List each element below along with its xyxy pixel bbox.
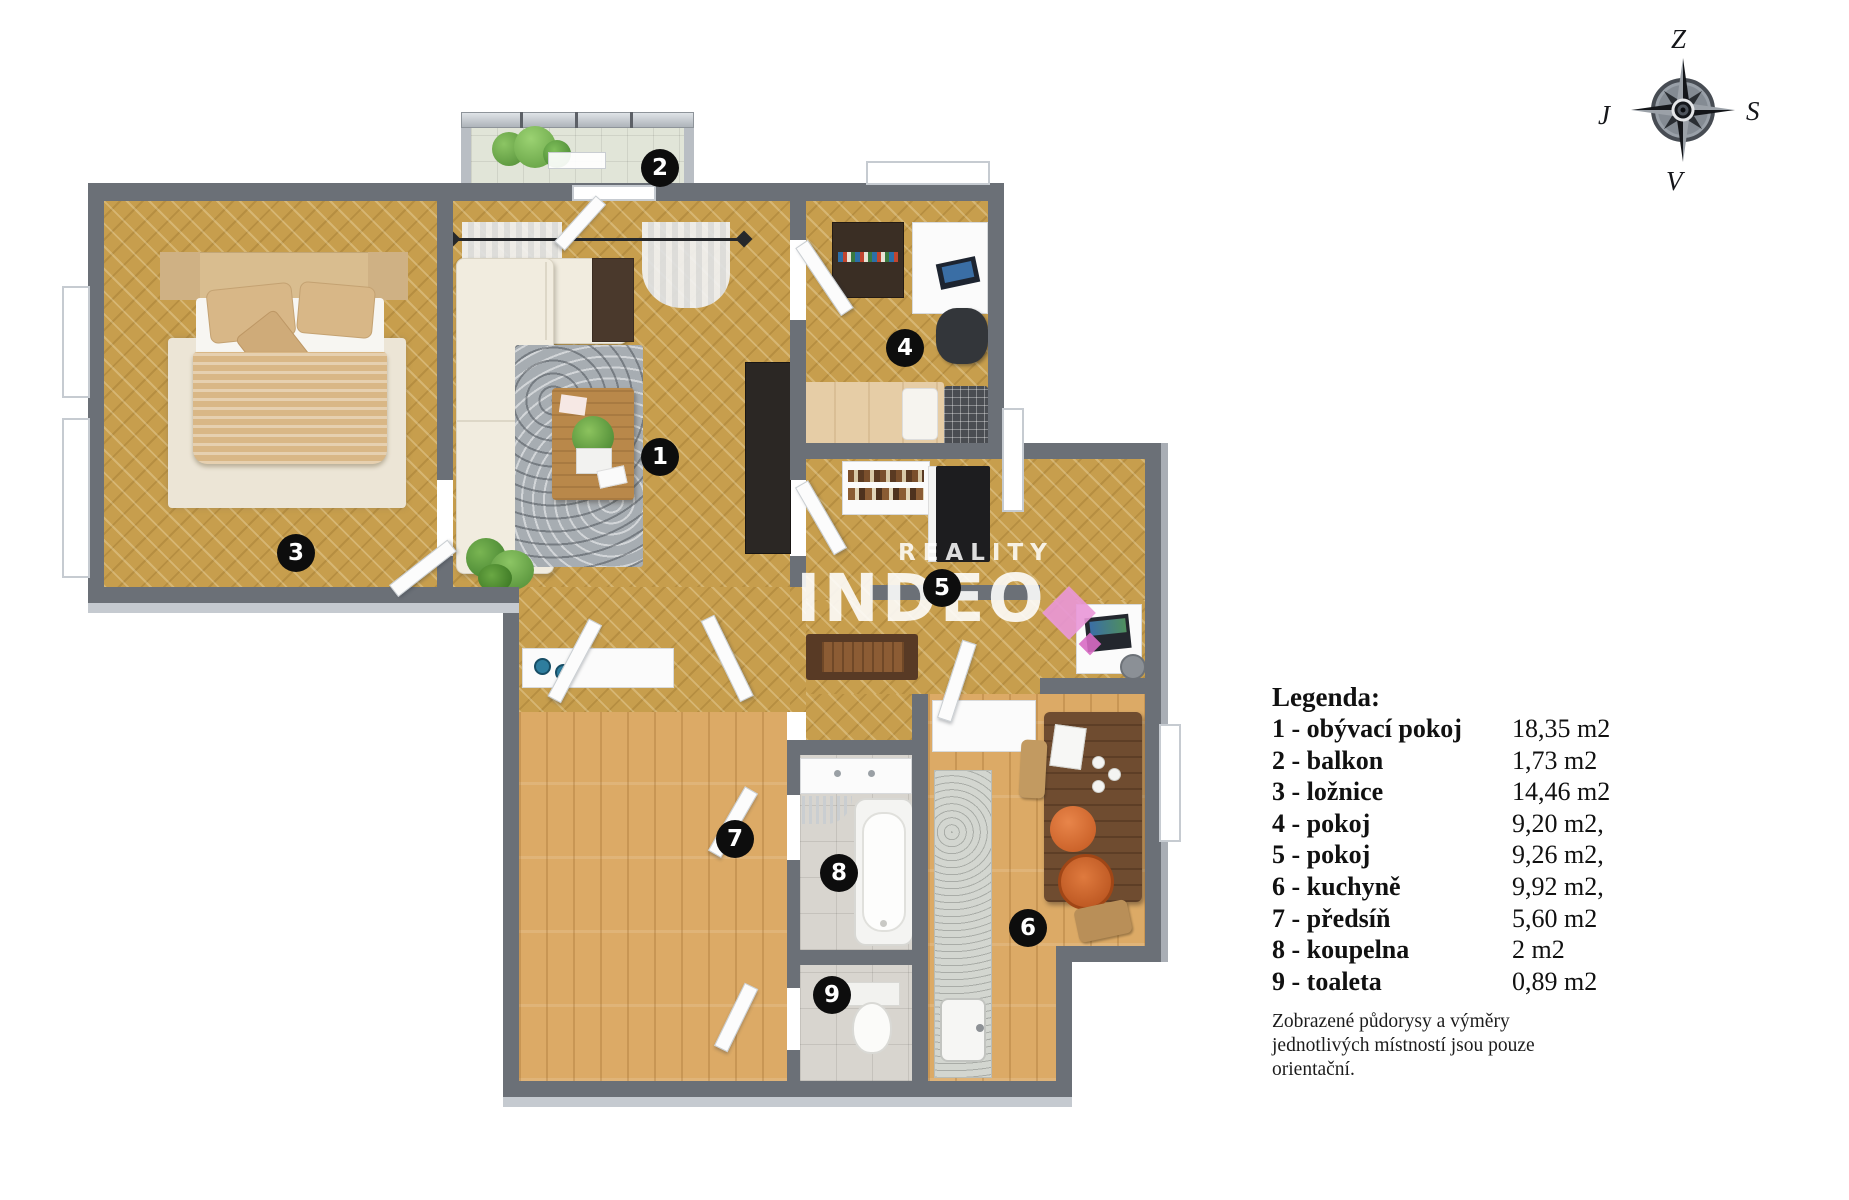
- entry-floor-2: [806, 694, 912, 740]
- balcony-railing-post: [575, 112, 578, 128]
- magazine: [559, 394, 587, 415]
- compass-dir-top: Z: [1671, 24, 1686, 55]
- nightstand: [160, 252, 200, 300]
- room-badge-2: 2: [641, 149, 679, 187]
- bed-room5: [936, 466, 990, 562]
- balcony-planter: [548, 152, 606, 169]
- wall: [1145, 443, 1161, 962]
- wc-bowl: [852, 1002, 892, 1054]
- legend-room-label: 3 - ložnice: [1272, 777, 1512, 807]
- window: [62, 286, 90, 398]
- legend-area-value: 5,60 m2: [1512, 904, 1597, 933]
- bathtub-drain: [880, 920, 887, 927]
- window: [1002, 408, 1024, 512]
- faucet: [976, 1024, 984, 1032]
- sofa-side-table: [592, 258, 634, 342]
- legend-row: 9 - toaleta0,89 m2: [1272, 967, 1652, 999]
- wall: [1056, 946, 1161, 962]
- wall: [437, 201, 453, 480]
- small-plate: [1108, 768, 1121, 781]
- legend-area-value: 18,35 m2: [1512, 714, 1610, 743]
- curtain: [642, 222, 730, 308]
- room-badge-8: 8: [820, 854, 858, 892]
- balcony-railing-post: [630, 112, 633, 128]
- faucet: [868, 770, 875, 777]
- room-badge-5: 5: [923, 569, 961, 607]
- legend-row: 1 - obývací pokoj18,35 m2: [1272, 714, 1652, 746]
- bed-room4-pillow: [902, 388, 938, 440]
- wall: [787, 860, 800, 988]
- legend-area-value: 0,89 m2: [1512, 967, 1597, 996]
- legend-area-value: 14,46 m2: [1512, 777, 1610, 806]
- balcony-door-frame: [572, 185, 656, 201]
- room-badge-6: 6: [1009, 909, 1047, 947]
- bed-room4-duvet: [944, 386, 988, 446]
- compass-rose-icon: [1625, 52, 1741, 168]
- office-chair: [936, 308, 988, 364]
- small-plate: [1092, 780, 1105, 793]
- entry-doormat-inner: [822, 642, 904, 672]
- legend-disclaimer: Zobrazené půdorysy a výměry jednotlivých…: [1272, 1010, 1590, 1081]
- wall: [1040, 678, 1161, 694]
- notebook: [1049, 724, 1087, 770]
- legend-area-value: 9,26 m2,: [1512, 840, 1604, 869]
- room-badge-3: 3: [277, 534, 315, 572]
- wall: [503, 1081, 1072, 1097]
- dresser-books: [848, 488, 924, 500]
- wall-bevel: [1161, 443, 1168, 962]
- legend-area-value: 2 m2: [1512, 935, 1565, 964]
- wall: [800, 950, 912, 965]
- wall-bevel: [503, 1097, 1072, 1107]
- wall: [88, 201, 104, 587]
- legend-room-label: 9 - toaleta: [1272, 967, 1512, 997]
- window: [62, 418, 90, 578]
- wall: [1056, 962, 1072, 1097]
- hallway-floor: [519, 712, 787, 1081]
- compass-dir-right: S: [1746, 96, 1760, 127]
- stool: [1120, 654, 1146, 680]
- legend-row: 3 - ložnice14,46 m2: [1272, 777, 1652, 809]
- legend-room-label: 4 - pokoj: [1272, 809, 1512, 839]
- curtain-rod: [452, 238, 744, 241]
- legend-row: 2 - balkon1,73 m2: [1272, 746, 1652, 778]
- wall: [88, 587, 519, 603]
- legend-room-label: 8 - koupelna: [1272, 935, 1512, 965]
- bookshelf-books: [838, 252, 898, 262]
- wall: [503, 587, 519, 1097]
- bed-duvet: [193, 352, 387, 464]
- wall: [790, 201, 806, 240]
- legend: Legenda: 1 - obývací pokoj18,35 m22 - ba…: [1272, 682, 1652, 1082]
- wall: [912, 694, 928, 1081]
- compass-dir-left: J: [1598, 100, 1610, 131]
- legend-room-label: 1 - obývací pokoj: [1272, 714, 1512, 744]
- room-badge-4: 4: [886, 329, 924, 367]
- wall: [988, 201, 1004, 443]
- sofa-cushion-seam: [545, 262, 547, 340]
- tv-cabinet: [745, 362, 791, 554]
- floorplan-canvas: 123456789 REALITY INDEO: [0, 0, 1849, 1200]
- wall: [790, 556, 806, 587]
- dining-chair: [1019, 739, 1048, 798]
- legend-room-label: 7 - předsíň: [1272, 904, 1512, 934]
- legend-row: 8 - koupelna2 m2: [1272, 935, 1652, 967]
- decor-bowl: [534, 658, 551, 675]
- dresser-books: [848, 470, 924, 482]
- bed-pillow: [296, 281, 376, 339]
- legend-area-value: 1,73 m2: [1512, 746, 1597, 775]
- legend-row: 5 - pokoj9,26 m2,: [1272, 840, 1652, 872]
- wall: [88, 183, 1004, 201]
- room-badge-9: 9: [813, 976, 851, 1014]
- wall: [795, 740, 928, 755]
- legend-area-value: 9,92 m2,: [1512, 872, 1604, 901]
- balcony-railing-post: [520, 112, 523, 128]
- legend-row: 7 - předsíň5,60 m2: [1272, 904, 1652, 936]
- wall: [798, 443, 1161, 459]
- corridor-connector-floor: [790, 587, 806, 712]
- wall: [787, 1050, 800, 1081]
- compass-dir-bottom: V: [1666, 166, 1683, 197]
- window: [1159, 724, 1181, 842]
- bathtub-basin: [862, 812, 906, 932]
- window: [866, 161, 990, 185]
- orange-plate: [1050, 806, 1096, 852]
- faucet: [834, 770, 841, 777]
- legend-row: 4 - pokoj9,20 m2,: [1272, 809, 1652, 841]
- legend-area-value: 9,20 m2,: [1512, 809, 1604, 838]
- legend-title: Legenda:: [1272, 682, 1652, 714]
- legend-rows: 1 - obývací pokoj18,35 m22 - balkon1,73 …: [1272, 714, 1652, 998]
- small-plate: [1092, 756, 1105, 769]
- wall-bevel: [88, 603, 519, 613]
- legend-room-label: 2 - balkon: [1272, 746, 1512, 776]
- room-badge-7: 7: [716, 820, 754, 858]
- orange-bowl: [1058, 854, 1114, 910]
- room-badge-1: 1: [641, 438, 679, 476]
- bathroom-vanity: [800, 758, 912, 794]
- legend-room-label: 6 - kuchyně: [1272, 872, 1512, 902]
- legend-room-label: 5 - pokoj: [1272, 840, 1512, 870]
- legend-row: 6 - kuchyně9,92 m2,: [1272, 872, 1652, 904]
